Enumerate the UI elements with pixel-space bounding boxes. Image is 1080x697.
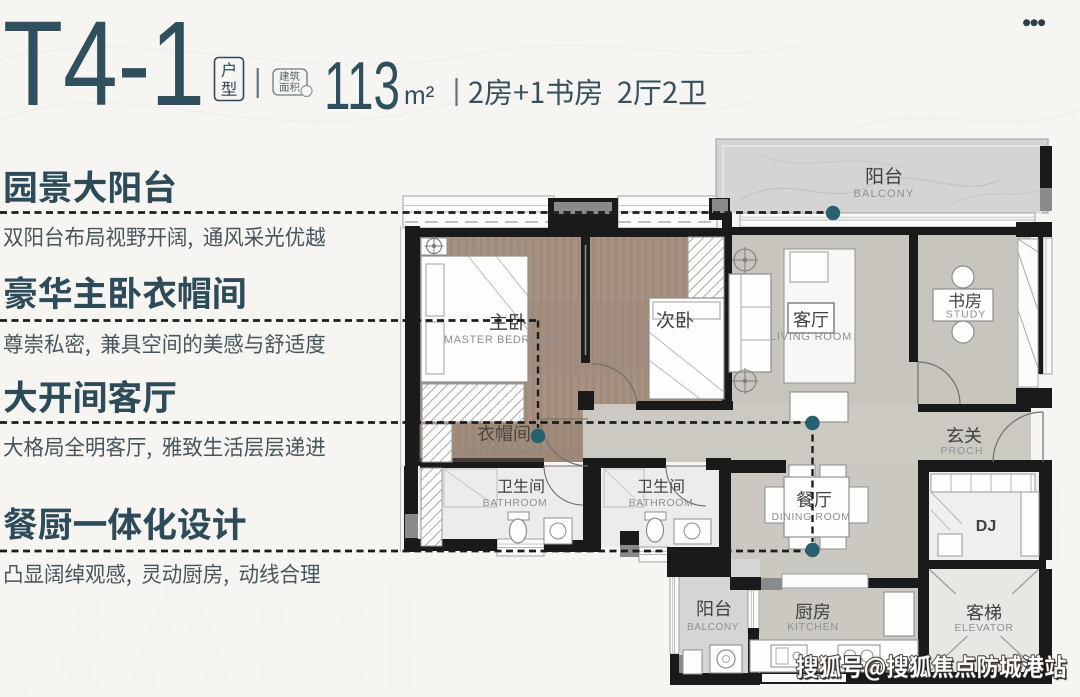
svg-text:DINING ROOM: DINING ROOM [772,511,851,523]
svg-text:m²: m² [404,80,435,110]
svg-text:RACF: RACF [0,547,486,692]
svg-text:DJ: DJ [976,518,996,535]
svg-text:T4-1: T4-1 [3,0,205,131]
svg-text:BATHROOM: BATHROOM [483,497,548,509]
svg-text:MASTER BEDROOM: MASTER BEDROOM [444,334,558,346]
svg-text:PROCH: PROCH [941,445,984,457]
svg-text:BALCONY: BALCONY [687,622,739,633]
svg-text:113: 113 [324,48,400,124]
svg-text:LIVING ROOM: LIVING ROOM [770,331,852,343]
svg-text:BALCONY: BALCONY [854,188,915,200]
svg-text:CLOAKROOM: CLOAKROOM [465,445,544,457]
svg-text:STUDY: STUDY [946,309,987,321]
svg-text:KITCHEN: KITCHEN [787,621,839,633]
svg-text:ELEVATOR: ELEVATOR [954,622,1013,634]
svg-text:BATHROOM: BATHROOM [629,497,694,509]
